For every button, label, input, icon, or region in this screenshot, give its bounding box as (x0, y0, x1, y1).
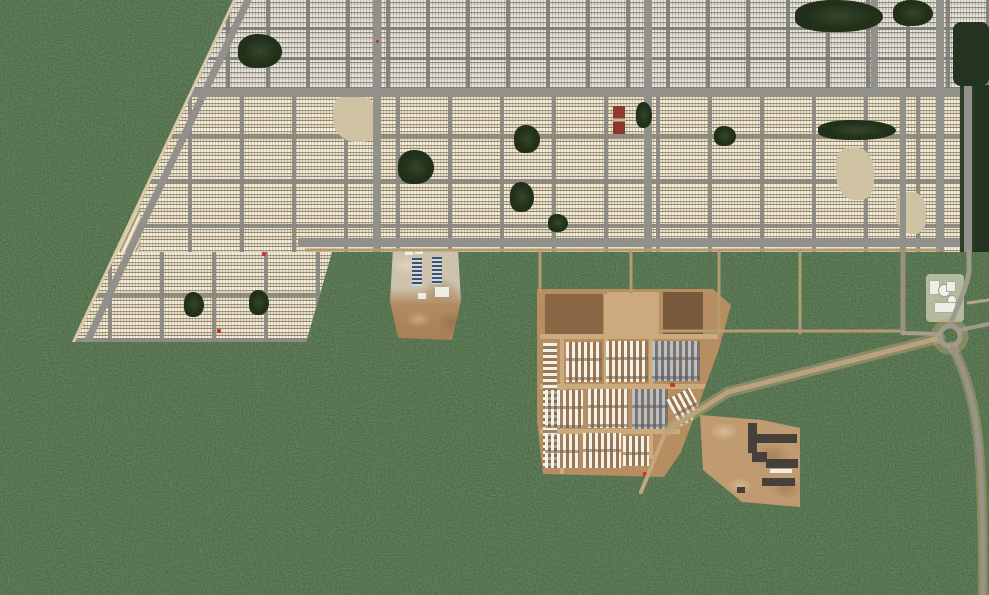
road-network (0, 0, 989, 595)
diagonal-road-shoulder (666, 338, 940, 431)
roundabout-north-link (950, 252, 969, 325)
camp-spur-road (641, 431, 666, 492)
satellite-image (0, 0, 989, 595)
east-dirt-branch (968, 300, 989, 303)
roundabout-west-link (903, 333, 940, 334)
